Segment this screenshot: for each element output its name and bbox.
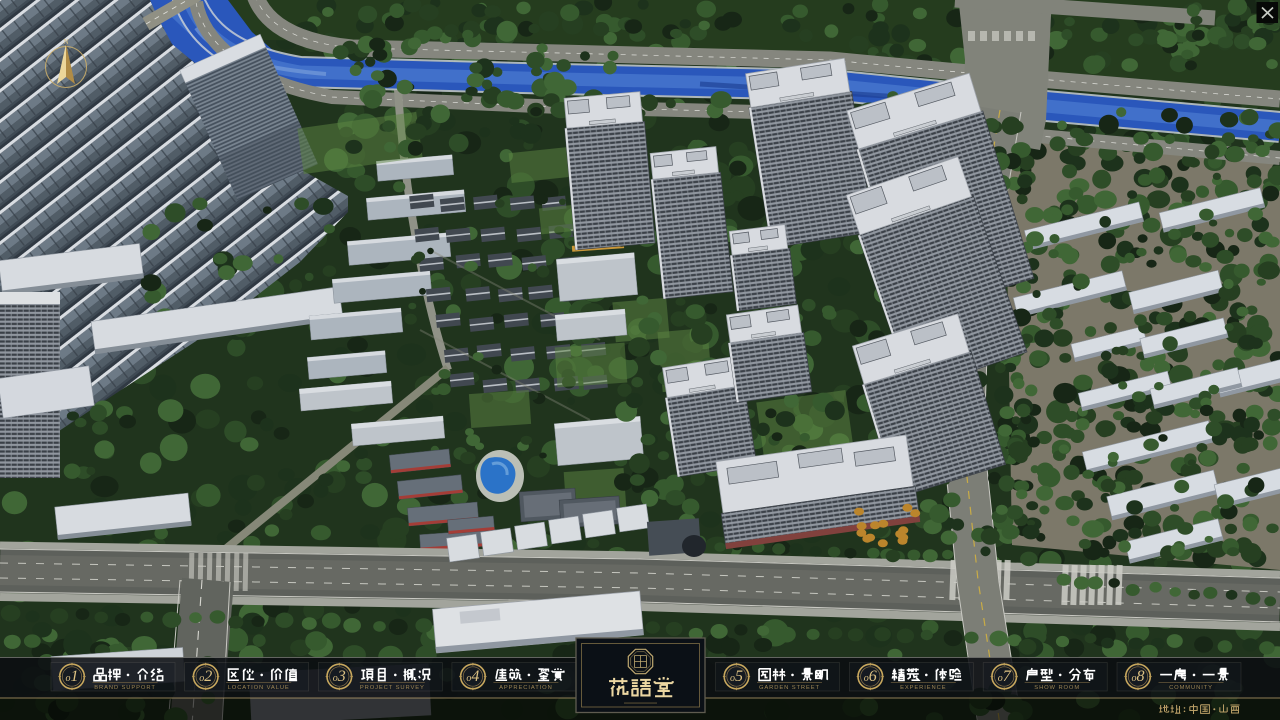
- svg-text:LOCATION VALUE: LOCATION VALUE: [228, 685, 290, 691]
- svg-text:N: N: [63, 38, 68, 46]
- svg-text:PROJECT SURVEY: PROJECT SURVEY: [360, 685, 425, 691]
- svg-text:GARDEN STREET: GARDEN STREET: [759, 685, 820, 691]
- svg-text:COMMUNITY: COMMUNITY: [1169, 685, 1213, 691]
- svg-text:APPRECIATION: APPRECIATION: [499, 685, 553, 691]
- svg-text:EXPERIENCE: EXPERIENCE: [900, 685, 946, 691]
- svg-text:SHOW ROOM: SHOW ROOM: [1034, 685, 1080, 691]
- svg-text:BRAND SUPPORT: BRAND SUPPORT: [94, 685, 156, 691]
